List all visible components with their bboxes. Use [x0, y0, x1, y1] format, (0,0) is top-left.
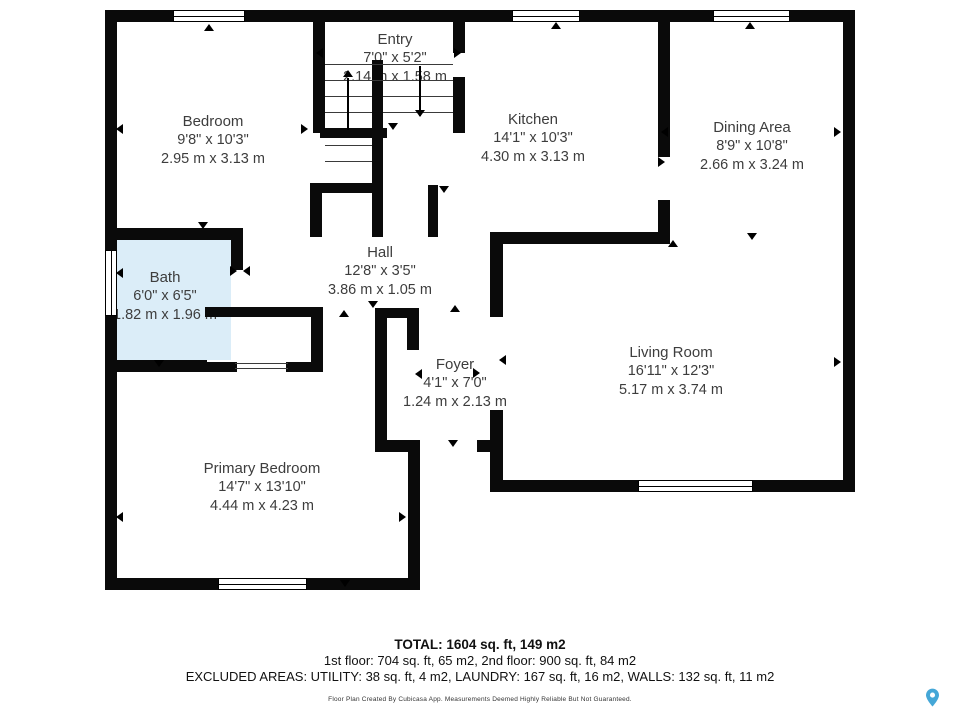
door-marker-icon: [116, 512, 123, 522]
wall-segment: [428, 185, 438, 237]
door-marker-icon: [473, 368, 480, 378]
disclaimer-text: Floor Plan Created By Cubicasa App. Meas…: [0, 696, 960, 703]
door-marker-icon: [230, 266, 237, 276]
door-marker-icon: [658, 157, 665, 167]
wall-segment: [492, 232, 670, 244]
door-marker-icon: [316, 48, 323, 58]
room-primary-imperial: 14'7" x 13'10": [204, 478, 321, 497]
door-marker-icon: [834, 357, 841, 367]
room-kitchen-name: Kitchen: [481, 110, 585, 129]
wall-segment: [205, 362, 237, 372]
room-bedroom-name: Bedroom: [161, 112, 265, 131]
door-marker-icon: [301, 124, 308, 134]
wall-segment: [313, 22, 325, 133]
room-living-imperial: 16'11" x 12'3": [619, 362, 723, 381]
room-label-dining: Dining Area8'9" x 10'8"2.66 m x 3.24 m: [700, 118, 804, 175]
window: [218, 578, 307, 590]
door-marker-icon: [154, 360, 164, 367]
room-label-bath: Bath6'0" x 6'5"1.82 m x 1.96 m: [113, 268, 217, 325]
stair-tread-line: [383, 96, 453, 97]
stair-tread-line: [325, 64, 453, 65]
location-pin-icon: [926, 688, 939, 712]
wall-segment: [407, 308, 419, 350]
wall-segment: [117, 228, 243, 240]
door-marker-icon: [834, 127, 841, 137]
window: [173, 10, 245, 22]
summary-floors: 1st floor: 704 sq. ft, 65 m2, 2nd floor:…: [0, 653, 960, 669]
door-marker-icon: [340, 580, 350, 587]
room-living-name: Living Room: [619, 343, 723, 362]
wall-segment: [843, 10, 855, 492]
door-marker-icon: [198, 222, 208, 229]
room-hall-metric: 3.86 m x 1.05 m: [328, 281, 432, 300]
door-marker-icon: [116, 268, 123, 278]
room-bath-imperial: 6'0" x 6'5": [113, 287, 217, 306]
room-living-metric: 5.17 m x 3.74 m: [619, 381, 723, 400]
window-pane-line: [639, 486, 752, 487]
room-bedroom-metric: 2.95 m x 3.13 m: [161, 150, 265, 169]
room-entry-imperial: 7'0" x 5'2": [343, 49, 447, 68]
window: [105, 250, 117, 316]
room-dining-metric: 2.66 m x 3.24 m: [700, 156, 804, 175]
room-primary-name: Primary Bedroom: [204, 459, 321, 478]
room-label-kitchen: Kitchen14'1" x 10'3"4.30 m x 3.13 m: [481, 110, 585, 167]
door-marker-icon: [339, 310, 349, 317]
room-hall-name: Hall: [328, 243, 432, 262]
summary-total: TOTAL: 1604 sq. ft, 149 m2: [0, 636, 960, 653]
door-marker-icon: [454, 48, 461, 58]
stair-tread-line: [235, 363, 288, 364]
wall-segment: [205, 307, 323, 317]
door-marker-icon: [448, 440, 458, 447]
door-marker-icon: [745, 22, 755, 29]
door-marker-icon: [116, 124, 123, 134]
room-label-living: Living Room16'11" x 12'3"5.17 m x 3.74 m: [619, 343, 723, 400]
stair-tread-line: [325, 145, 372, 146]
stair-down-arrow-icon: [415, 110, 425, 117]
door-marker-icon: [668, 240, 678, 247]
floor-plan: Entry7'0" x 5'2"2.14 m x 1.58 mBedroom9'…: [0, 0, 960, 620]
room-hall-imperial: 12'8" x 3'5": [328, 262, 432, 281]
window: [713, 10, 790, 22]
wall-segment: [375, 308, 387, 452]
room-dining-name: Dining Area: [700, 118, 804, 137]
stair-tread-line: [325, 80, 453, 81]
door-marker-icon: [747, 233, 757, 240]
stair-tread-line: [235, 368, 288, 369]
room-label-hall: Hall12'8" x 3'5"3.86 m x 1.05 m: [328, 243, 432, 300]
room-bedroom-imperial: 9'8" x 10'3": [161, 131, 265, 150]
door-marker-icon: [243, 266, 250, 276]
door-marker-icon: [450, 305, 460, 312]
room-entry-metric: 2.14 m x 1.58 m: [343, 68, 447, 87]
wall-segment: [286, 362, 323, 372]
stair-arrow-stem: [419, 66, 421, 116]
stair-tread-line: [325, 161, 372, 162]
room-bath-name: Bath: [113, 268, 217, 287]
window: [512, 10, 580, 22]
wall-segment: [490, 232, 503, 317]
door-marker-icon: [499, 355, 506, 365]
window-pane-line: [513, 16, 579, 17]
room-kitchen-metric: 4.30 m x 3.13 m: [481, 148, 585, 167]
window: [638, 480, 753, 492]
door-marker-icon: [551, 22, 561, 29]
room-label-bedroom: Bedroom9'8" x 10'3"2.95 m x 3.13 m: [161, 112, 265, 169]
window-pane-line: [219, 584, 306, 585]
door-marker-icon: [415, 369, 422, 379]
wall-segment: [310, 183, 322, 237]
wall-segment: [372, 60, 383, 237]
floor-plan-page: Entry7'0" x 5'2"2.14 m x 1.58 mBedroom9'…: [0, 0, 960, 720]
area-summary: TOTAL: 1604 sq. ft, 149 m2 1st floor: 70…: [0, 636, 960, 685]
room-entry-name: Entry: [343, 30, 447, 49]
door-marker-icon: [439, 186, 449, 193]
window-pane-line: [714, 16, 789, 17]
wall-segment: [408, 450, 420, 590]
room-primary-metric: 4.44 m x 4.23 m: [204, 497, 321, 516]
door-marker-icon: [661, 127, 668, 137]
door-marker-icon: [388, 123, 398, 130]
room-label-entry: Entry7'0" x 5'2"2.14 m x 1.58 m: [343, 30, 447, 87]
wall-segment: [453, 77, 465, 133]
room-label-foyer: Foyer4'1" x 7'0"1.24 m x 2.13 m: [403, 355, 507, 412]
door-marker-icon: [204, 24, 214, 31]
door-marker-icon: [368, 301, 378, 308]
stair-up-arrow-icon: [343, 70, 353, 77]
wall-segment: [320, 128, 387, 138]
room-bath-metric: 1.82 m x 1.96 m: [113, 306, 217, 325]
door-marker-icon: [399, 512, 406, 522]
stair-arrow-stem: [347, 78, 349, 130]
room-kitchen-imperial: 14'1" x 10'3": [481, 129, 585, 148]
room-dining-imperial: 8'9" x 10'8": [700, 137, 804, 156]
room-label-primary: Primary Bedroom14'7" x 13'10"4.44 m x 4.…: [204, 459, 321, 516]
window-pane-line: [111, 251, 112, 315]
window-pane-line: [174, 16, 244, 17]
summary-excluded: EXCLUDED AREAS: UTILITY: 38 sq. ft, 4 m2…: [0, 669, 960, 685]
